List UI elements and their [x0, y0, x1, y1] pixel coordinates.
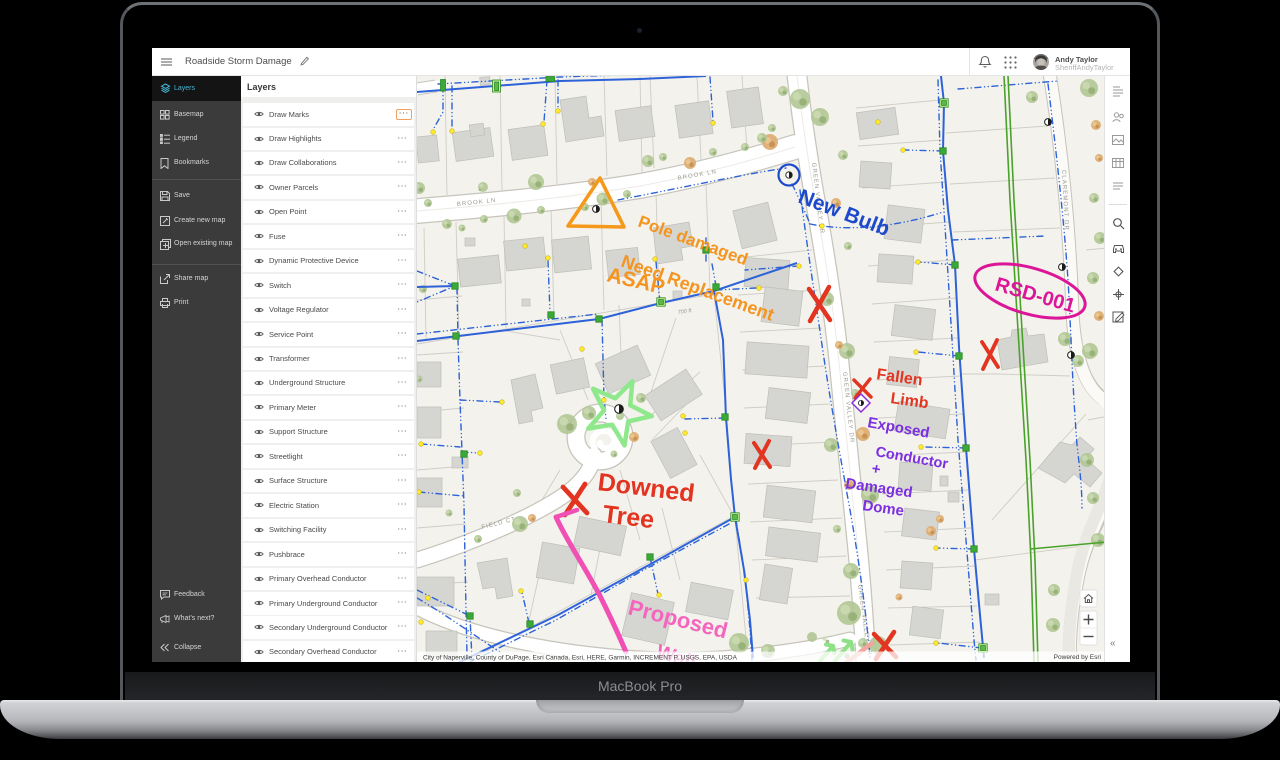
svg-text:City of Naperville, County of: City of Naperville, County of DuPage, Es… [423, 655, 738, 662]
svg-text:Powered by Esri: Powered by Esri [1054, 654, 1101, 661]
